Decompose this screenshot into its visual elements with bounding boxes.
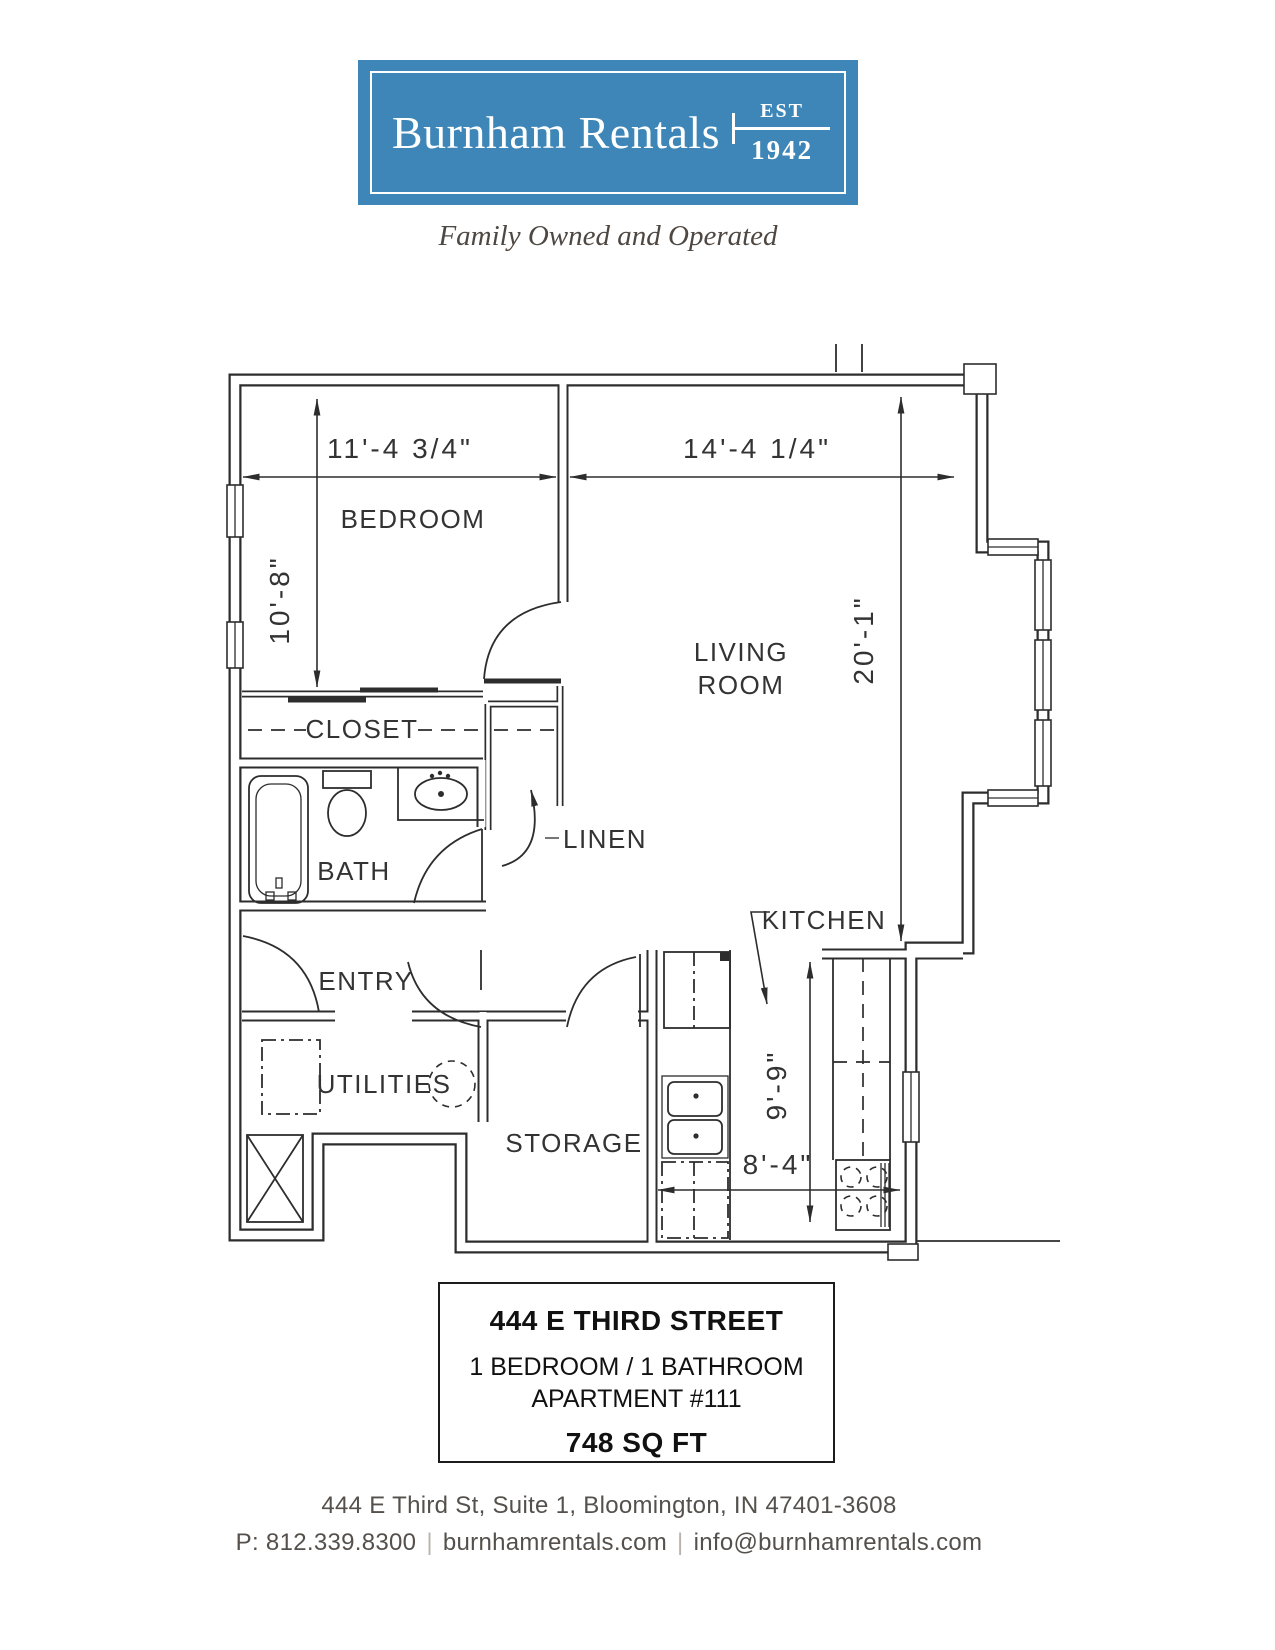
flyer-page: Burnham Rentals EST 1942 Family Owned an… [0, 0, 1275, 1650]
bedroom-window-icon [227, 485, 243, 537]
footer: 444 E Third St, Suite 1, Bloomington, IN… [0, 1492, 1218, 1557]
kitchen-cabinet-icon [664, 952, 730, 1028]
dim-living-width: 14'-4 1/4" [683, 433, 831, 464]
label-closet: CLOSET [305, 714, 418, 744]
label-living-2: ROOM [698, 670, 785, 700]
unit-info-box: 444 E THIRD STREET 1 BEDROOM / 1 BATHROO… [438, 1282, 835, 1463]
utility-unit-icon [262, 1040, 320, 1114]
label-storage: STORAGE [505, 1128, 642, 1158]
label-bedroom: BEDROOM [341, 504, 486, 534]
plan-labels: BEDROOM CLOSET BATH LINEN ENTRY UTILITIE… [264, 433, 886, 1180]
unit-number: APARTMENT #111 [531, 1385, 741, 1414]
bath-sink-icon [398, 768, 484, 820]
kitchen-window-icon [903, 1072, 919, 1142]
bay-window-top-icon [988, 539, 1038, 555]
dim-kitchen-depth: 9'-9" [761, 1050, 792, 1121]
bedroom-door-icon [484, 602, 561, 681]
bedroom-window-icon [227, 622, 243, 668]
fridge-counter-icon [833, 958, 890, 1160]
footer-website[interactable]: burnhamrentals.com [443, 1529, 667, 1556]
kitchen-sink-icon [662, 1076, 728, 1158]
bay-window-bottom-icon [988, 790, 1038, 806]
dim-living-depth: 20'-1" [848, 595, 879, 684]
label-linen: LINEN [563, 824, 647, 854]
footer-contact: P: 812.339.8300|burnhamrentals.com|info@… [0, 1529, 1218, 1557]
unit-bed-bath: 1 BEDROOM / 1 BATHROOM [469, 1353, 803, 1382]
unit-sqft: 748 SQ FT [566, 1427, 707, 1459]
windows [227, 485, 1051, 1142]
dim-kitchen-width: 8'-4" [743, 1149, 814, 1180]
footer-email[interactable]: info@burnhamrentals.com [694, 1529, 983, 1556]
dishwasher-icon [662, 1162, 728, 1238]
footer-phone: P: 812.339.8300 [236, 1529, 417, 1556]
footer-separator: | [667, 1529, 694, 1556]
corner-step [888, 1244, 918, 1260]
roof-pipes-icon [836, 344, 862, 372]
footer-address: 444 E Third St, Suite 1, Bloomington, IN… [0, 1492, 1218, 1520]
toilet-icon [323, 771, 371, 836]
bay-window-icon [1035, 640, 1051, 710]
dim-bedroom-width: 11'-4 3/4" [327, 433, 473, 464]
bathtub-icon [249, 776, 308, 903]
label-entry: ENTRY [318, 966, 413, 996]
shaft-icon [247, 1135, 303, 1222]
stove-icon [836, 1160, 890, 1230]
doors [243, 602, 640, 1027]
corner-post [964, 364, 996, 394]
bay-window-icon [1035, 720, 1051, 786]
bay-window-icon [1035, 560, 1051, 630]
label-kitchen: KITCHEN [762, 905, 887, 935]
linen-door-icon [502, 790, 559, 866]
footer-separator: | [416, 1529, 443, 1556]
storage-door-icon [567, 954, 640, 1027]
bath-door-icon [414, 829, 482, 903]
dim-bedroom-depth: 10'-8" [264, 555, 295, 644]
label-living-1: LIVING [694, 637, 788, 667]
unit-address: 444 E THIRD STREET [490, 1305, 784, 1337]
entry-door-icon [243, 936, 319, 1012]
label-bath: BATH [317, 856, 390, 886]
label-utilities: UTILITIES [317, 1069, 452, 1099]
